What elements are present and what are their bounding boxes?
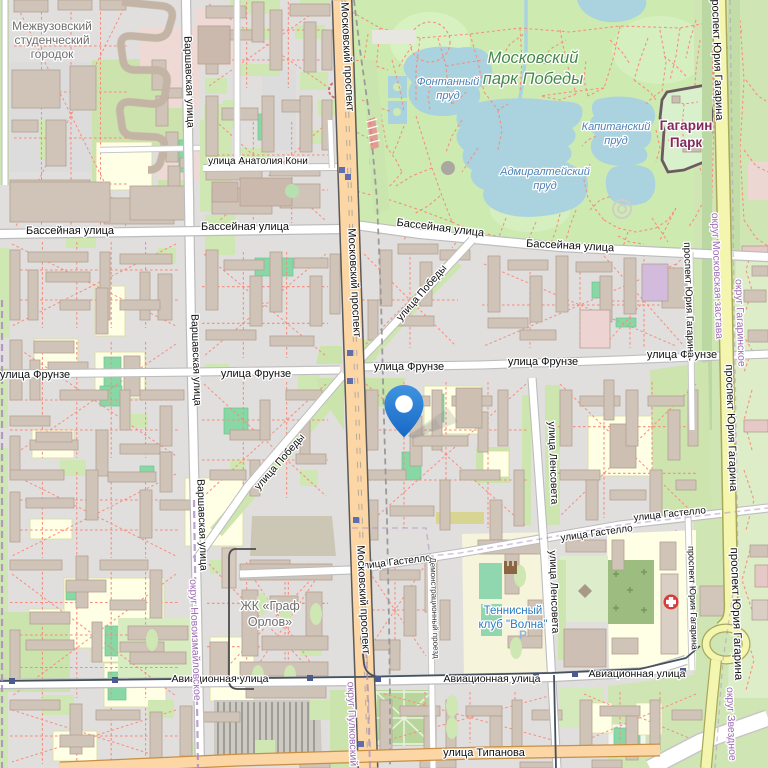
svg-text:пруд: пруд: [604, 135, 627, 147]
svg-text:Гагарин: Гагарин: [660, 118, 713, 133]
svg-text:Орлов»: Орлов»: [248, 615, 292, 629]
svg-text:Авиационная улица: Авиационная улица: [172, 673, 269, 685]
svg-text:Бассейная улица: Бассейная улица: [26, 225, 115, 237]
svg-text:улица Типанова: улица Типанова: [443, 747, 526, 759]
svg-text:Межвузовский: Межвузовский: [12, 19, 92, 33]
svg-text:улица Фрунзе: улица Фрунзе: [374, 361, 444, 373]
svg-text:Фонтанный: Фонтанный: [417, 76, 479, 88]
svg-text:Бассейная улица: Бассейная улица: [201, 221, 290, 233]
svg-text:студенческий: студенческий: [14, 33, 89, 47]
svg-text:парк Победы: парк Победы: [483, 70, 583, 88]
svg-text:улица Фрунзе: улица Фрунзе: [0, 369, 70, 381]
svg-text:улица Фрунзе: улица Фрунзе: [221, 368, 291, 380]
svg-text:улица Анатолия Кони: улица Анатолия Кони: [208, 156, 308, 167]
svg-text:Парк: Парк: [670, 135, 702, 150]
svg-text:городок: городок: [31, 47, 75, 61]
svg-text:Московский: Московский: [488, 49, 579, 67]
svg-text:Авиационная улица: Авиационная улица: [589, 668, 686, 680]
svg-text:клуб "Волна": клуб "Волна": [479, 619, 548, 631]
svg-text:Капитанский: Капитанский: [582, 121, 651, 133]
svg-text:Авиационная улица: Авиационная улица: [444, 673, 541, 685]
svg-text:улица Фрунзе: улица Фрунзе: [508, 356, 578, 368]
svg-text:улица Фрунзе: улица Фрунзе: [647, 349, 717, 361]
svg-text:ЖК «Граф: ЖК «Граф: [240, 599, 300, 613]
svg-text:Теннисный: Теннисный: [484, 605, 543, 617]
svg-text:P: P: [519, 628, 527, 642]
svg-text:пруд: пруд: [436, 90, 459, 102]
svg-text:пруд: пруд: [533, 180, 556, 192]
svg-text:Адмиралтейский: Адмиралтейский: [499, 166, 590, 178]
